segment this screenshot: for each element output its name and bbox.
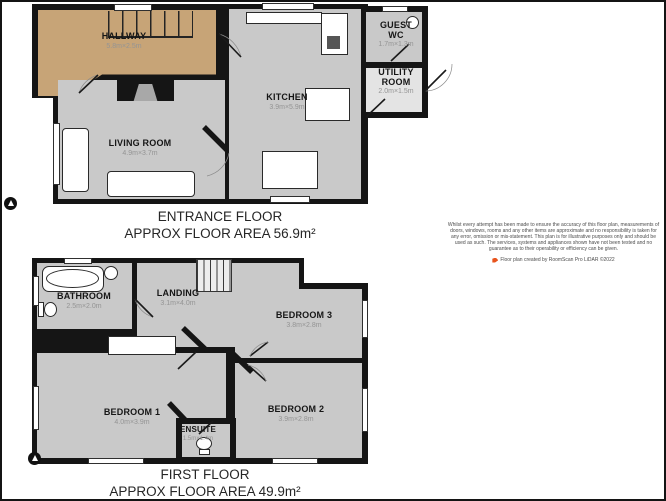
- bedroom-2-label: BEDROOM 2 3.9m×2.8m: [268, 405, 324, 423]
- bathroom-label: BATHROOM 2.5m×2.0m: [57, 292, 111, 310]
- floor-area: APPROX FLOOR AREA 49.9m²: [85, 484, 325, 501]
- kitchen-island: [305, 88, 350, 121]
- sink-icon: [104, 266, 118, 280]
- window: [272, 458, 318, 464]
- floor-plan-page: HALLWAY 5.8m×2.5m LIVING ROOM 4.9m×3.7m …: [0, 0, 666, 501]
- ensuite-label: ENSUITE 1.5m×1.4m: [180, 425, 216, 443]
- window: [362, 300, 368, 338]
- hallway-label: HALLWAY 5.8m×2.5m: [102, 32, 147, 50]
- living-room-label: LIVING ROOM 4.9m×3.7m: [109, 139, 172, 157]
- north-arrow-icon: [28, 452, 41, 465]
- cupboard: [108, 336, 176, 355]
- window: [33, 276, 39, 306]
- disclaimer-text: Whilst every attempt has been made to en…: [447, 223, 660, 253]
- north-arrow-icon: [4, 197, 17, 210]
- first-floor-title: FIRST FLOOR APPROX FLOOR AREA 49.9m²: [85, 467, 325, 500]
- toilet-bowl: [44, 302, 57, 317]
- guest-wc-label: GUEST WC 1.7m×1.3m: [374, 21, 418, 49]
- stairs-icon: [196, 259, 232, 292]
- window: [270, 196, 310, 203]
- window: [262, 3, 314, 10]
- window: [33, 386, 39, 430]
- kitchen-counter: [246, 12, 322, 24]
- sofa-icon: [107, 171, 195, 197]
- floor-name: FIRST FLOOR: [85, 467, 325, 484]
- floor-area: APPROX FLOOR AREA 56.9m²: [100, 226, 340, 243]
- bathtub-basin: [46, 269, 99, 288]
- landing-label: LANDING 3.1m×4.0m: [157, 289, 199, 307]
- sofa-icon: [62, 128, 89, 192]
- credit-text: Floor plan created by RoomScan Pro LiDAR…: [500, 257, 614, 263]
- credit-line: Floor plan created by RoomScan Pro LiDAR…: [447, 257, 660, 263]
- window: [382, 6, 408, 12]
- toilet-tank: [199, 449, 210, 455]
- window: [88, 458, 144, 464]
- utility-room-label: UTILITY ROOM 2.0m×1.5m: [370, 68, 422, 96]
- floor-name: ENTRANCE FLOOR: [100, 209, 340, 226]
- kitchen-label: KITCHEN 3.9m×5.9m: [266, 93, 307, 111]
- roomscan-logo-icon: [492, 258, 498, 263]
- kitchen-table: [262, 151, 318, 189]
- window: [114, 4, 152, 11]
- entrance-floor-title: ENTRANCE FLOOR APPROX FLOOR AREA 56.9m²: [100, 209, 340, 242]
- bedroom-1-label: BEDROOM 1 4.0m×3.9m: [104, 408, 160, 426]
- window: [53, 123, 60, 185]
- exterior-cutout: [30, 98, 53, 206]
- bedroom-3-label: BEDROOM 3 3.8m×2.8m: [276, 311, 332, 329]
- appliance-icon: [327, 36, 340, 49]
- window: [362, 388, 368, 432]
- window: [64, 258, 92, 264]
